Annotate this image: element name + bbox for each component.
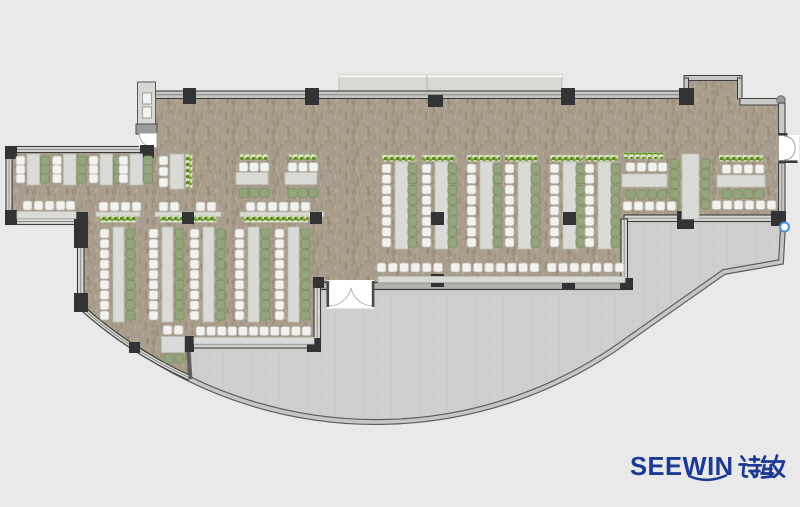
svg-text:SEEWIN: SEEWIN (630, 453, 734, 481)
